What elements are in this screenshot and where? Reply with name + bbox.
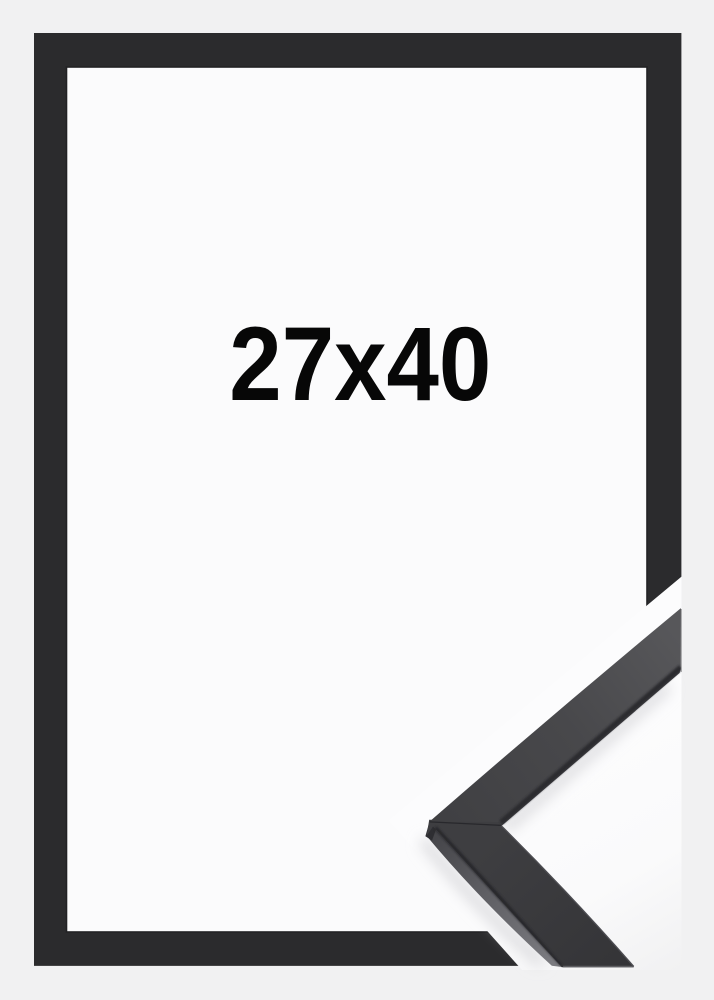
svg-text:27x40: 27x40 xyxy=(229,306,491,423)
